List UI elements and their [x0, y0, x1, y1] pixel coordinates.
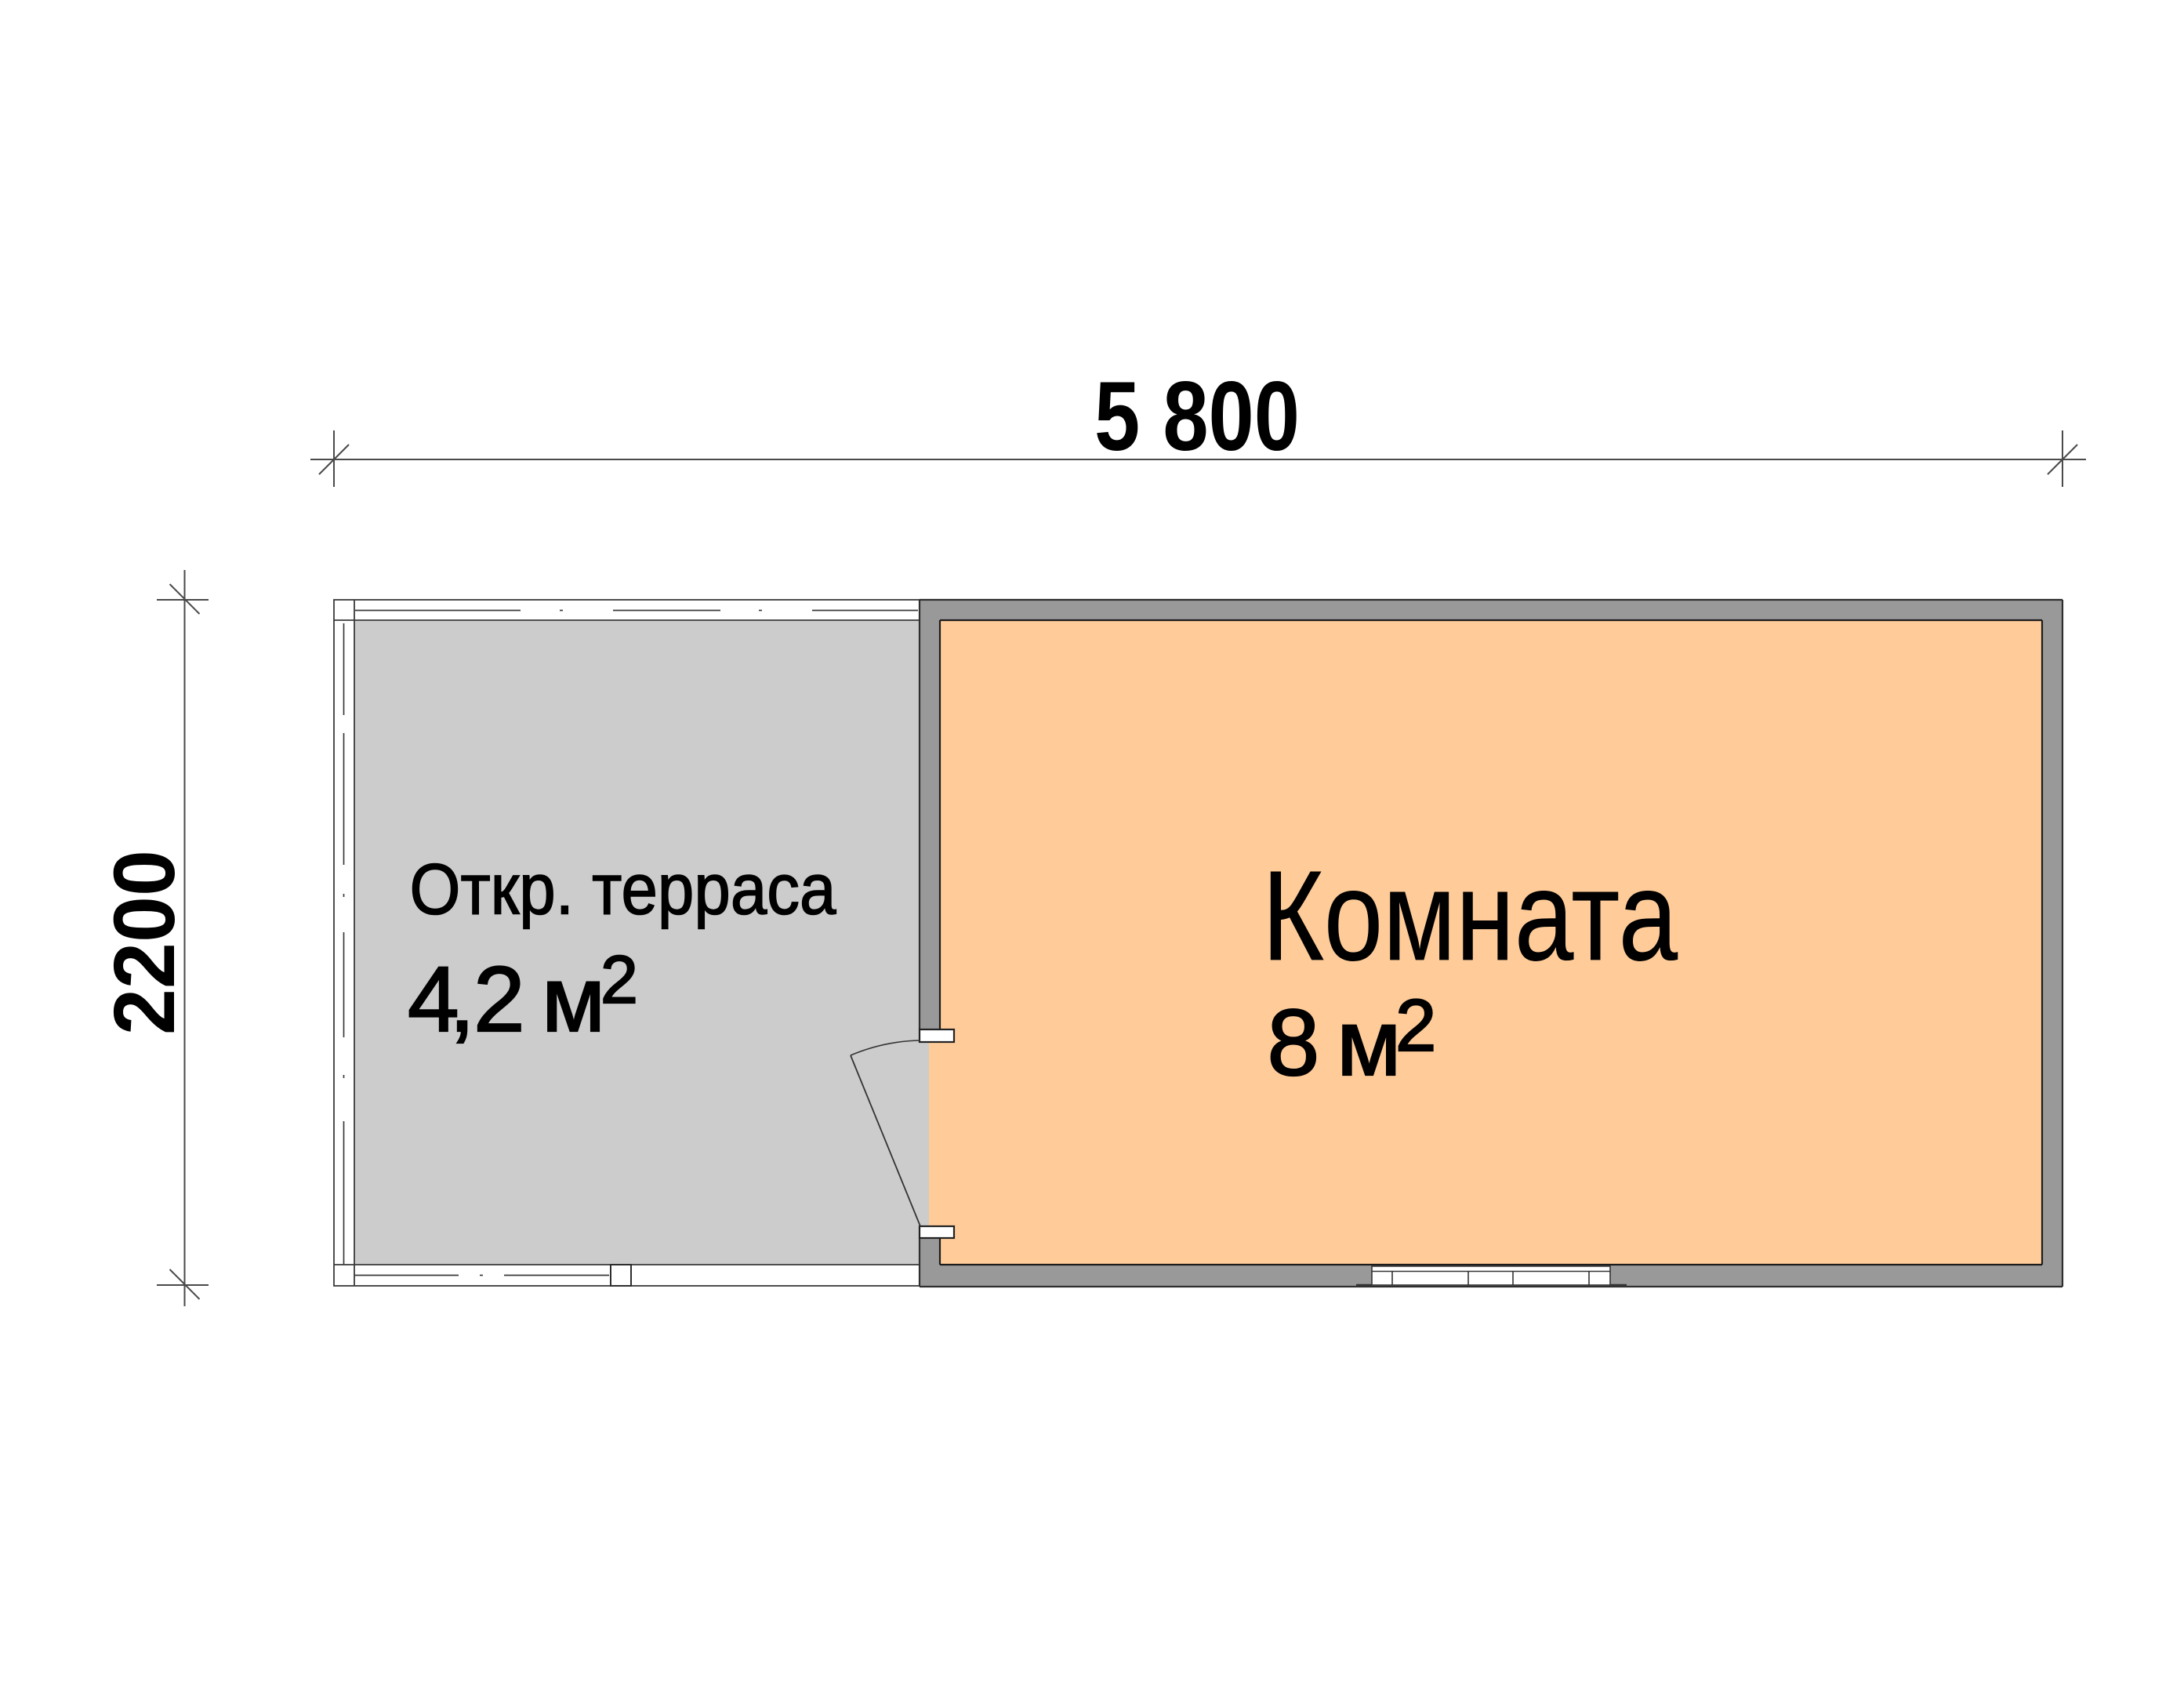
- svg-text:4,2м2: 4,2м2: [408, 942, 638, 1051]
- svg-text:Откр. терраса: Откр. терраса: [410, 850, 837, 930]
- svg-text:Комната: Комната: [1262, 844, 1678, 987]
- svg-text:2200: 2200: [96, 850, 193, 1035]
- svg-text:5 800: 5 800: [1094, 362, 1300, 471]
